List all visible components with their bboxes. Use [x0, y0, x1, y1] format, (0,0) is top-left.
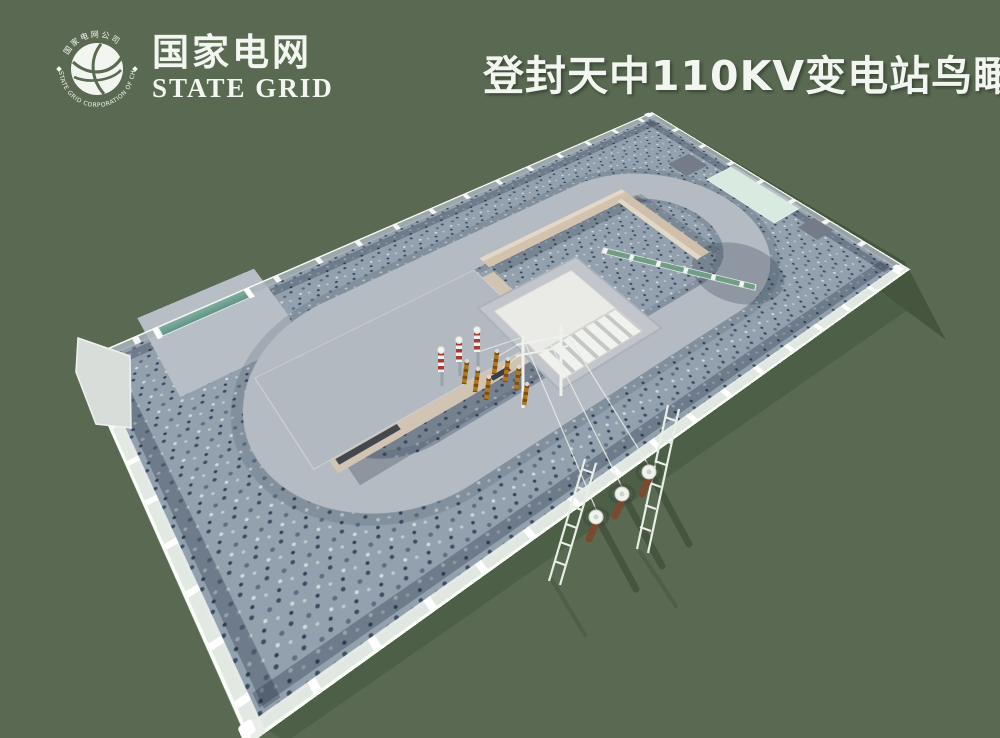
surge-arrester: [456, 337, 463, 377]
surge-arrester: [438, 347, 445, 387]
bushing: [505, 357, 510, 382]
logo-name-cn: 国家电网: [152, 34, 334, 73]
bushing: [516, 365, 521, 390]
bushing: [524, 382, 529, 405]
surge-arresters: [438, 327, 481, 387]
terminal-pole: [610, 485, 634, 516]
bushing: [494, 349, 499, 374]
state-grid-emblem-icon: 国家电网公司 STATE GRID CORPORATION OF CHINA: [52, 24, 142, 114]
logo-wordmark: 国家电网 STATE GRID: [152, 34, 334, 104]
page-title: 登封天中110KV变电站鸟瞰图: [483, 42, 1000, 102]
state-grid-logo: 国家电网公司 STATE GRID CORPORATION OF CHINA 国…: [52, 24, 334, 114]
terminal-poles: [584, 463, 661, 539]
bushing: [486, 375, 491, 400]
transformer-bushings: [464, 349, 529, 405]
header: 国家电网公司 STATE GRID CORPORATION OF CHINA 国…: [0, 0, 1000, 120]
logo-name-en: STATE GRID: [152, 73, 334, 104]
surge-arrester: [474, 327, 481, 367]
bushing: [464, 359, 469, 384]
west-retaining-wall: [76, 338, 131, 428]
lattice-support-1: [549, 459, 596, 585]
terminal-pole: [584, 508, 608, 539]
bushing: [475, 367, 480, 392]
slide: 国家电网公司 STATE GRID CORPORATION OF CHINA 国…: [0, 0, 1000, 738]
